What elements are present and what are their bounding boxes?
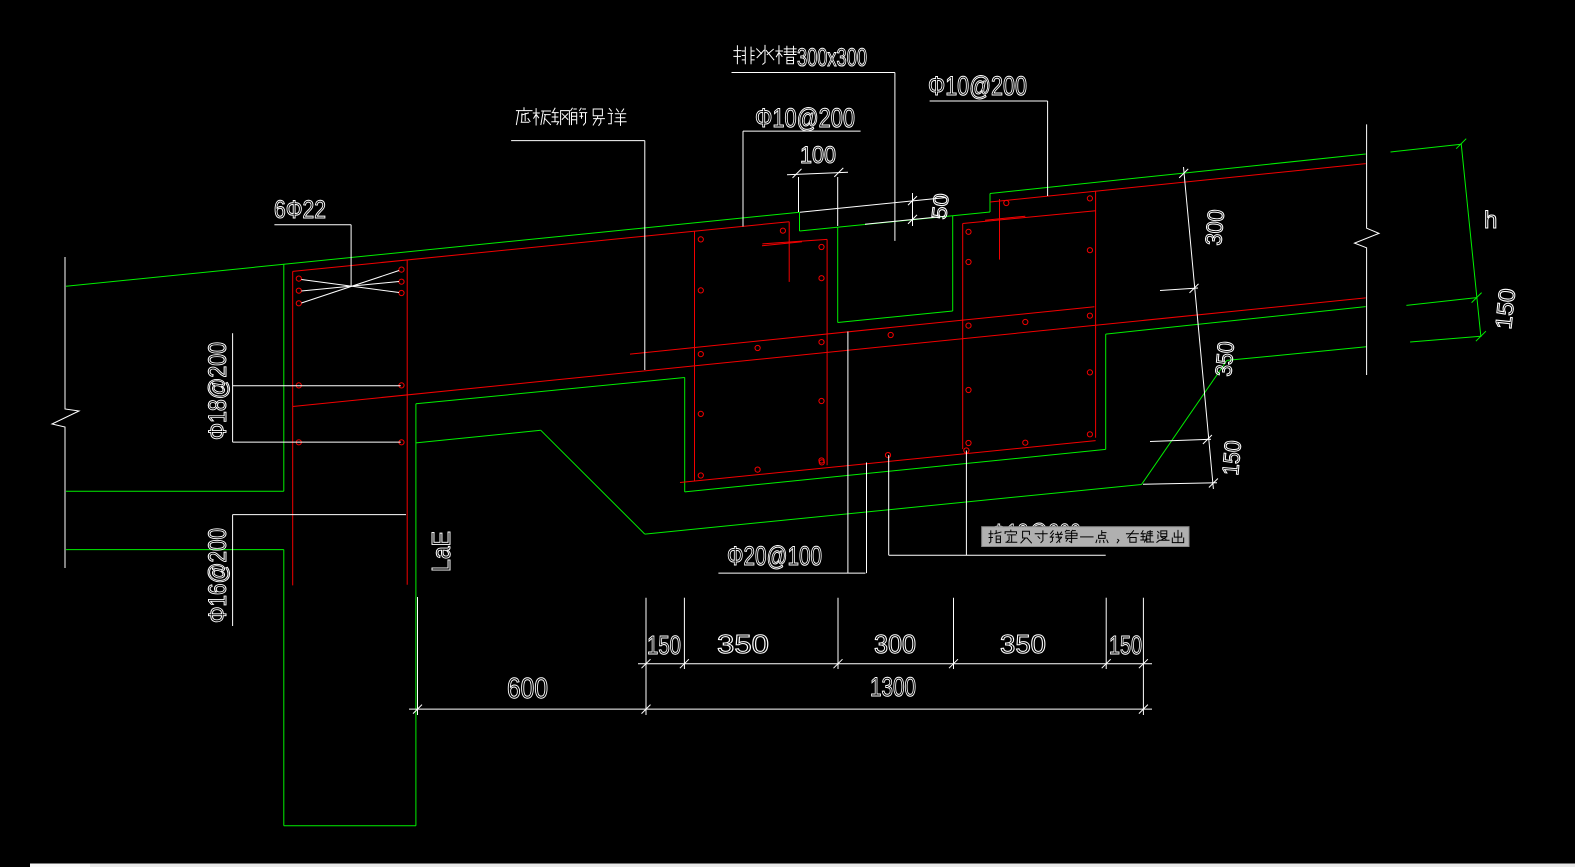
- svg-text:6Φ22: 6Φ22: [274, 196, 326, 224]
- svg-text:350: 350: [1210, 340, 1239, 377]
- svg-text:150: 150: [1109, 630, 1142, 660]
- svg-text:1300: 1300: [870, 672, 916, 702]
- svg-text:350: 350: [717, 629, 769, 659]
- svg-text:150: 150: [1217, 439, 1246, 476]
- svg-text:150: 150: [1490, 287, 1520, 330]
- svg-text:150: 150: [647, 630, 681, 660]
- svg-text:h: h: [1484, 207, 1497, 234]
- svg-text:300: 300: [1200, 208, 1229, 246]
- svg-text:600: 600: [507, 673, 548, 705]
- svg-text:LaE: LaE: [426, 531, 456, 572]
- svg-text:Φ18@200: Φ18@200: [204, 342, 232, 440]
- svg-text:Φ16@200: Φ16@200: [204, 528, 232, 623]
- svg-text:50: 50: [928, 192, 954, 220]
- svg-text:300x300: 300x300: [797, 44, 867, 72]
- svg-text:Φ10@200: Φ10@200: [928, 71, 1027, 101]
- svg-text:Φ10@200: Φ10@200: [755, 103, 855, 133]
- svg-text:300: 300: [874, 629, 916, 659]
- svg-text:Φ20@100: Φ20@100: [727, 541, 822, 571]
- svg-text:100: 100: [800, 142, 836, 169]
- svg-text:350: 350: [1000, 629, 1046, 659]
